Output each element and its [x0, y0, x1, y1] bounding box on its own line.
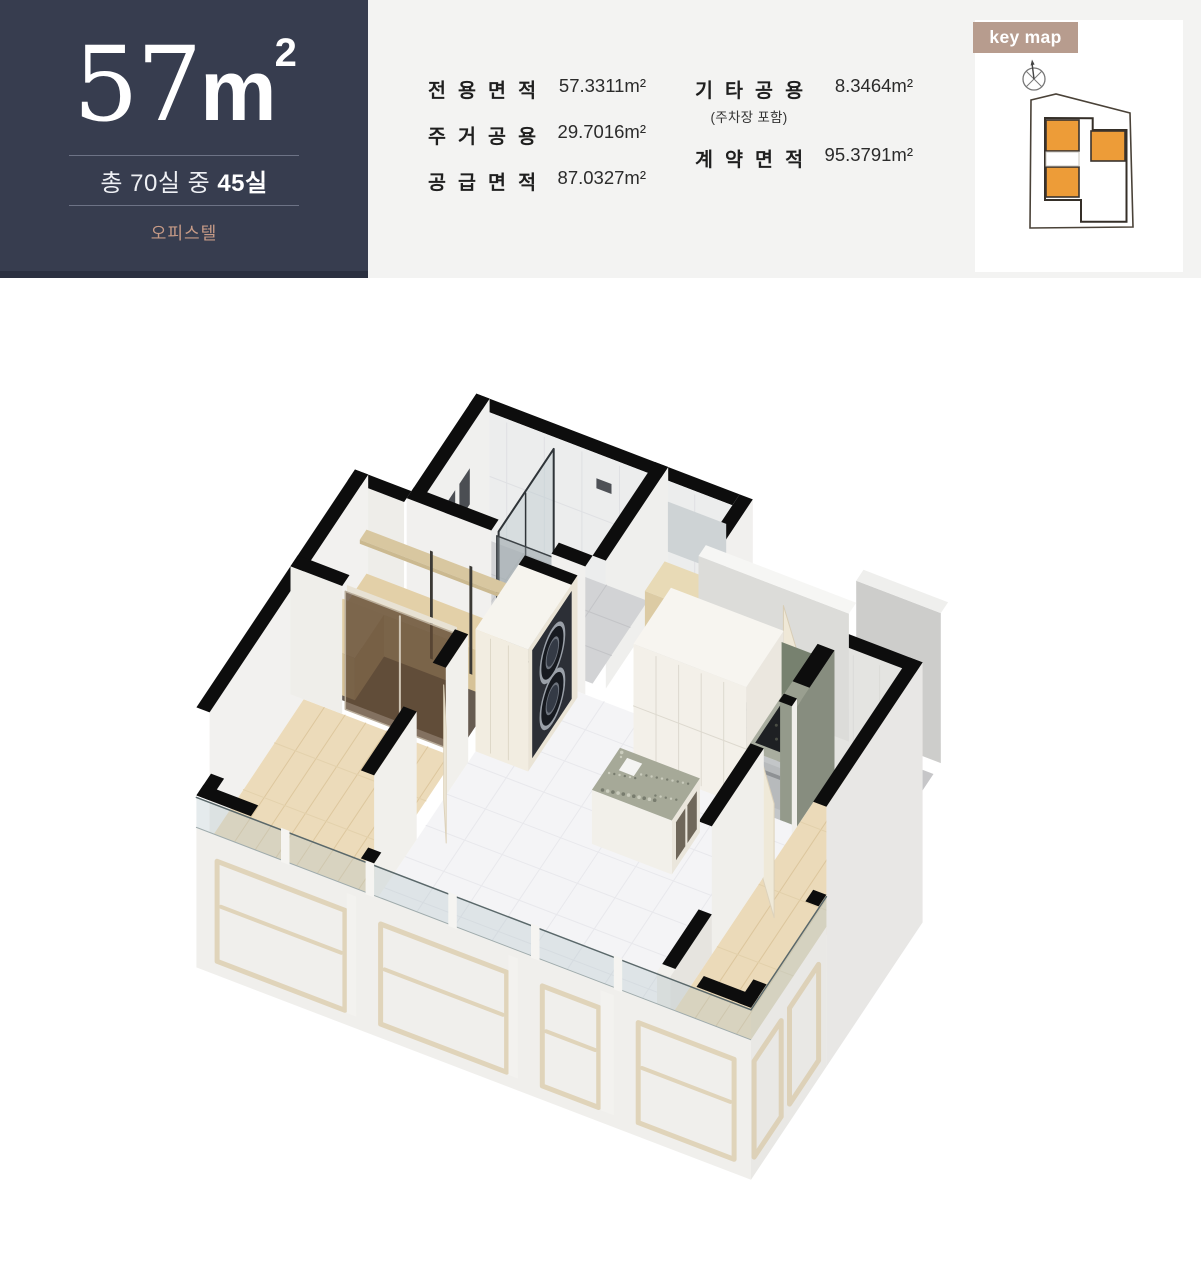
- unit-size: 57m2: [0, 34, 368, 137]
- divider: [69, 155, 299, 156]
- area-sublabel: (주차장 포함): [695, 106, 803, 126]
- area-label: 공급면적: [428, 166, 548, 195]
- divider: [69, 205, 299, 206]
- room-count-bold: 45실: [217, 170, 267, 197]
- area-value: 57.3311m²: [559, 75, 646, 97]
- highlighted-unit: [1046, 167, 1079, 197]
- key-map-title: key map: [973, 22, 1078, 53]
- table-row: 공급면적 87.0327m²: [428, 166, 646, 195]
- area-label: 전용면적: [428, 74, 548, 103]
- table-row: 계약면적 95.3791m²: [695, 143, 913, 172]
- area-table-left: 전용면적 57.3311m² 주거공용 29.7016m² 공급면적 87.03…: [428, 74, 646, 212]
- unit-info-page: 57m2 총 70실 중 45실 오피스텔 전용면적 57.3311m² 주거공…: [0, 0, 1201, 1285]
- unit-badge: 57m2 총 70실 중 45실 오피스텔: [0, 0, 368, 278]
- key-map-diagram: [975, 20, 1183, 272]
- area-value: 87.0327m²: [558, 167, 646, 189]
- floor-plan-render: [0, 278, 1201, 1285]
- area-label: 주거공용: [428, 120, 548, 149]
- unit-size-number: 57: [73, 25, 200, 145]
- compass-icon: [1023, 60, 1045, 91]
- area-value: 8.3464m²: [835, 75, 913, 97]
- table-row: 기타공용 (주차장 포함) 8.3464m²: [695, 74, 913, 126]
- core-area: [1046, 152, 1079, 166]
- room-count: 총 70실 중 45실: [0, 163, 368, 198]
- header: 57m2 총 70실 중 45실 오피스텔 전용면적 57.3311m² 주거공…: [0, 0, 1201, 278]
- unit-type-label: 오피스텔: [0, 219, 368, 244]
- area-label: 계약면적: [695, 143, 815, 172]
- area-value: 29.7016m²: [558, 121, 646, 143]
- highlighted-unit: [1046, 120, 1079, 151]
- area-label: 기타공용: [695, 74, 815, 103]
- floor-plan-illustration: [0, 278, 1201, 1285]
- key-map-card: key map: [975, 20, 1183, 272]
- unit-size-superscript: 2: [275, 31, 297, 75]
- room-count-prefix: 총 70실 중: [100, 170, 217, 197]
- area-value: 95.3791m²: [825, 144, 913, 166]
- table-row: 주거공용 29.7016m²: [428, 120, 646, 149]
- table-row: 전용면적 57.3311m²: [428, 74, 646, 103]
- highlighted-unit: [1091, 131, 1125, 161]
- unit-size-unit: m: [200, 43, 272, 139]
- area-table-right: 기타공용 (주차장 포함) 8.3464m² 계약면적 95.3791m²: [695, 74, 913, 189]
